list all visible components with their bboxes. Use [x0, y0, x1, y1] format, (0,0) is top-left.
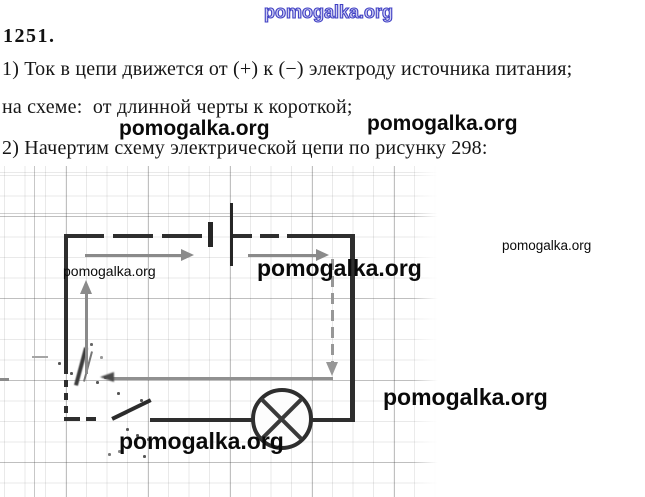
pencil-speck [96, 381, 99, 384]
watermark-mid-right: pomogalka.org [367, 112, 518, 136]
pencil-speck [90, 343, 93, 346]
battery-positive-plate-icon [230, 203, 233, 266]
watermark-bottom: pomogalka.org [119, 428, 284, 455]
battery-negative-plate-icon [208, 222, 213, 247]
watermark-top-blue: pomogalka.org [264, 2, 393, 23]
pencil-mark [0, 378, 9, 381]
current-arrow-top-left [85, 254, 183, 257]
current-arrow-left-up [85, 294, 88, 374]
pencil-speck [143, 455, 146, 458]
current-arrow-left-up-head [80, 280, 92, 294]
watermark-diagram-center: pomogalka.org [257, 255, 422, 282]
wire-top-right [300, 234, 354, 238]
wire-bottom-dash [64, 417, 80, 421]
pencil-mark [32, 356, 48, 358]
current-arrow-top-left-head [181, 249, 194, 261]
pencil-speck [100, 356, 103, 359]
problem-number: 1251. [3, 25, 56, 48]
wire-left-dashed [64, 380, 68, 421]
solution-step-1-continued: на схеме: от длинной черты к короткой; [2, 96, 353, 119]
watermark-diagram-left: pomogalka.org [63, 263, 156, 279]
wire-top-right-dashed [233, 234, 303, 238]
wire-top-left [64, 234, 208, 238]
wire-bottom-dash [86, 417, 96, 421]
wire-bottom-right [311, 418, 354, 422]
wire-bottom [150, 418, 253, 422]
current-arrow-bottom-left-line [112, 377, 333, 380]
current-arrow-right-down-head [326, 362, 338, 376]
scan-edge-fade [412, 166, 442, 497]
pencil-speck [117, 392, 120, 395]
wire-left [64, 234, 68, 374]
solution-step-2: 2) Начертим схему электрической цепи по … [2, 137, 488, 160]
solution-page: pomogalka.org 1251. 1) Ток в цепи движет… [0, 0, 645, 497]
current-arrow-bottom-left-head [100, 372, 114, 382]
watermark-bottom-right: pomogalka.org [383, 384, 548, 411]
solution-step-1: 1) Ток в цепи движется от (+) к (−) элек… [2, 58, 572, 81]
watermark-diagram-right: pomogalka.org [502, 238, 591, 253]
pencil-speck [70, 372, 73, 375]
pencil-speck [58, 362, 61, 365]
pencil-speck [108, 453, 111, 456]
